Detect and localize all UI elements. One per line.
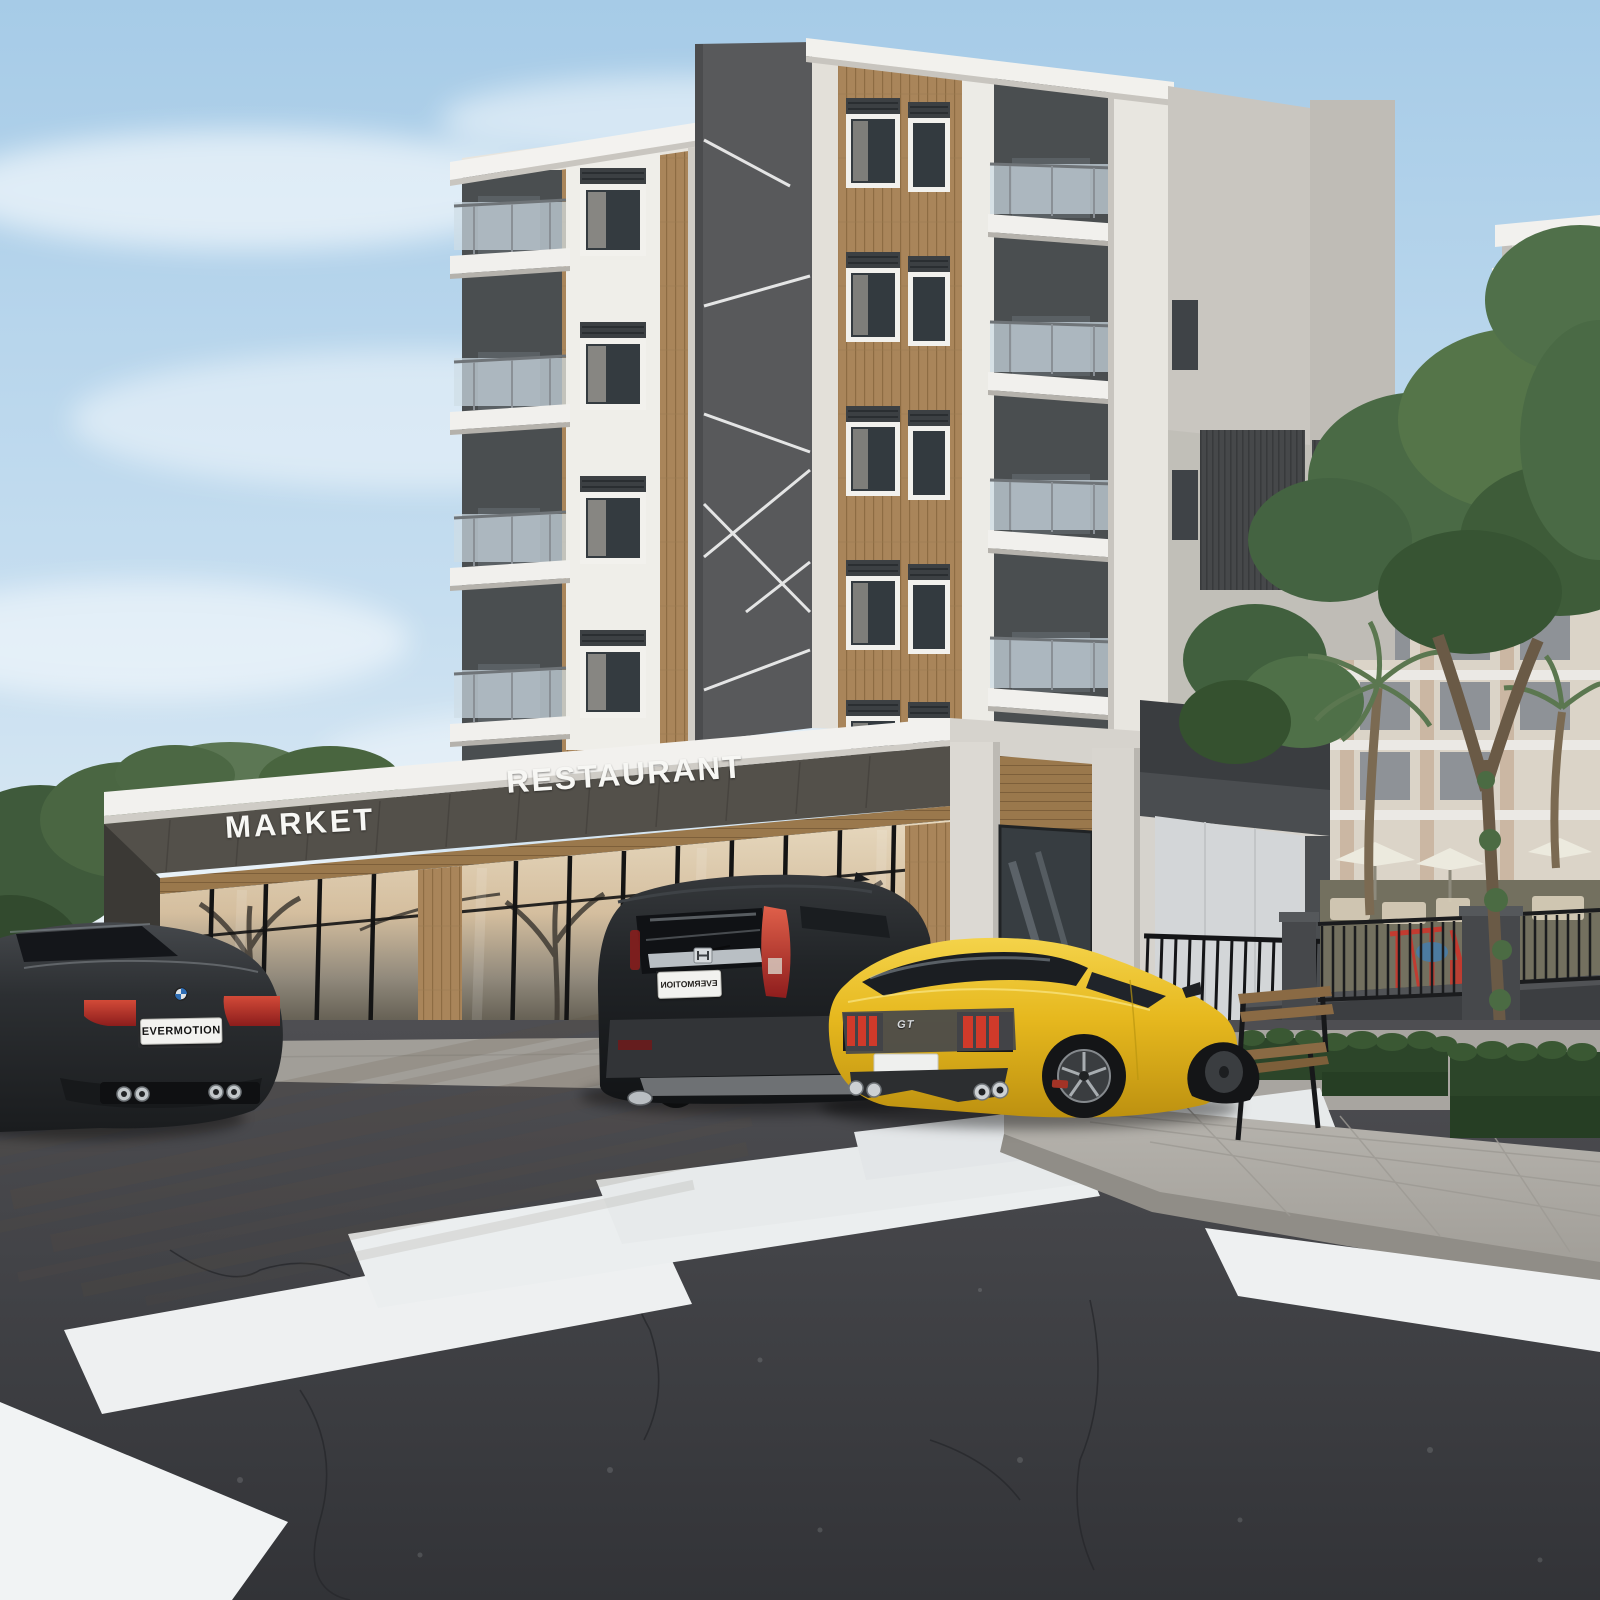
honda-exhaust xyxy=(628,1091,652,1105)
honda-plate-mirrored-text: EVERMOTION xyxy=(660,971,718,998)
scene-canvas xyxy=(0,0,1600,1600)
tower-core-panel xyxy=(695,42,812,742)
bmw-license-plate: EVERMOTION xyxy=(140,1017,223,1045)
honda-badge xyxy=(694,948,712,963)
bmw-taillight xyxy=(224,996,280,1026)
mustang-rear-wheel xyxy=(1042,1034,1126,1118)
architectural-rendering: MARKET RESTAURANT EVERMOTION EVERMOTION … xyxy=(0,0,1600,1600)
mustang-gt-badge: GT xyxy=(897,1019,914,1031)
honda-license-plate: EVERMOTION xyxy=(657,970,722,999)
storefront-wood-pier xyxy=(418,866,462,1044)
tower-left-face xyxy=(450,122,700,800)
tower-right-face xyxy=(806,38,1174,792)
honda-taillight xyxy=(761,906,790,998)
